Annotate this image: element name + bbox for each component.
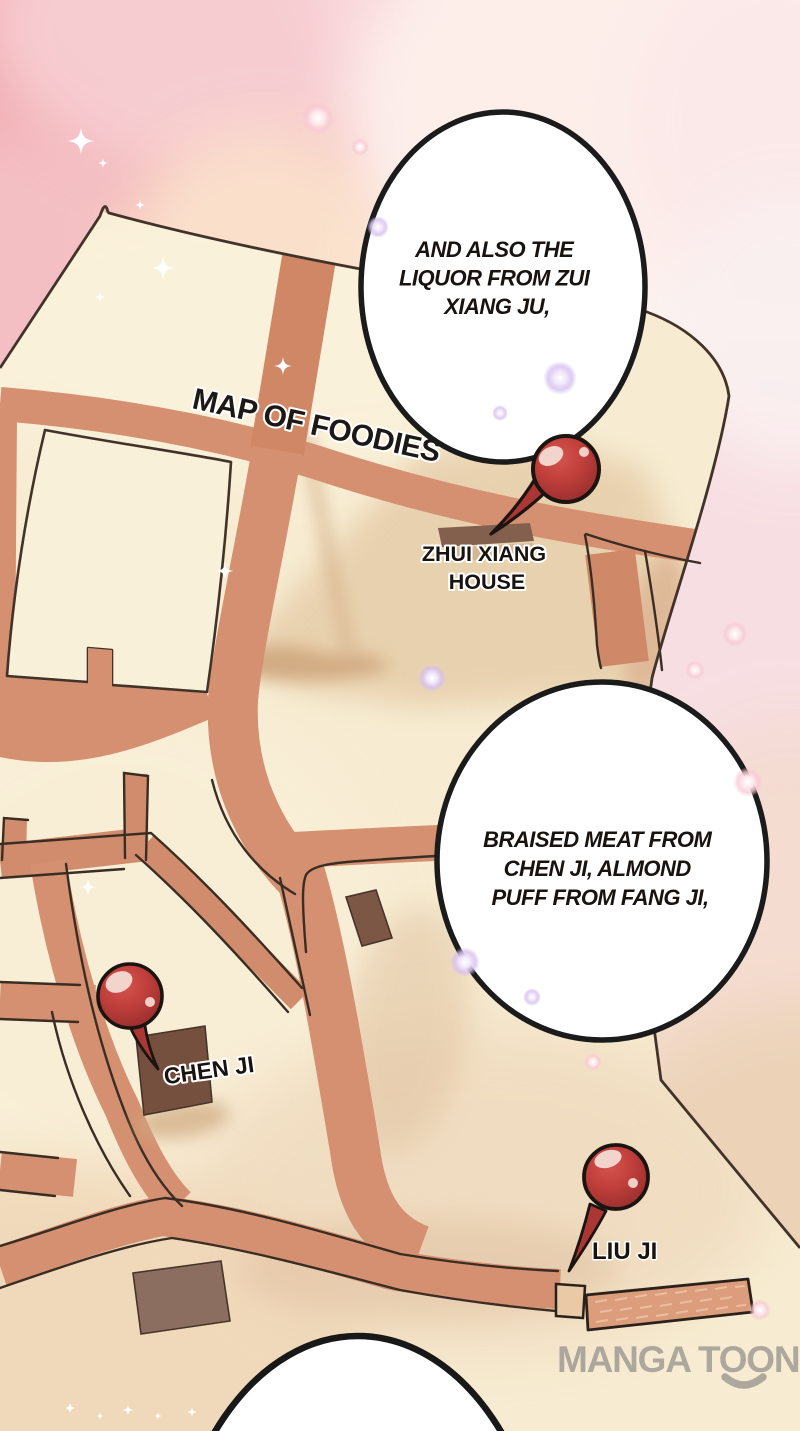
svg-text:BRAISED MEAT FROM CHEN JI, A: BRAISED MEAT FROM CHEN JI, ALMOND PUFF F… — [483, 827, 717, 910]
svg-text:ZHUI XIANG: ZHUI XIANG — [422, 542, 546, 566]
svg-text:MANGA: MANGA — [557, 1339, 691, 1380]
svg-text:TOON: TOON — [698, 1339, 799, 1380]
svg-text:HOUSE: HOUSE — [449, 570, 525, 594]
svg-text:LIU JI: LIU JI — [592, 1238, 657, 1265]
